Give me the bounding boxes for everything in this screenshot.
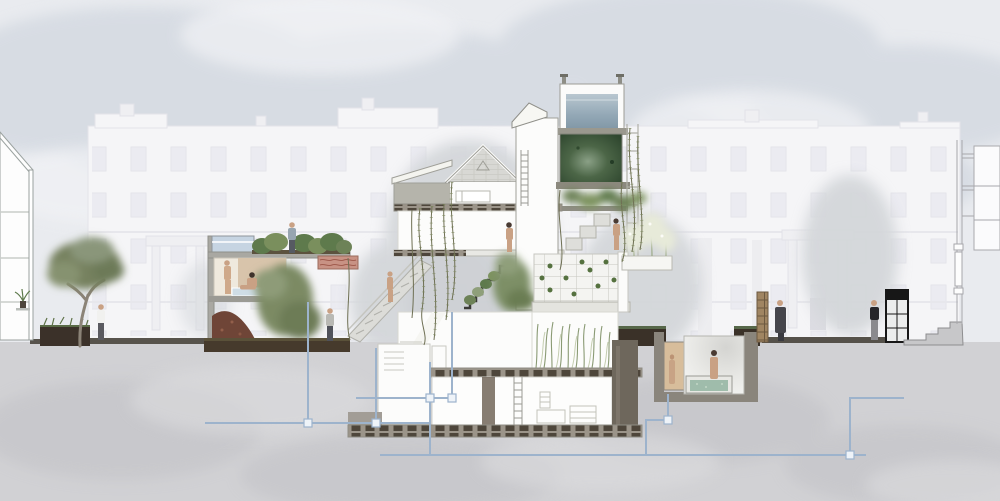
moss-wall [556, 128, 630, 189]
brick-pillar [757, 292, 768, 342]
grid-planter-terrace [532, 252, 630, 312]
water-tank [212, 236, 254, 254]
annex-soil-base [204, 340, 350, 352]
attic-bedroom [450, 182, 516, 204]
plunge-bath [686, 376, 732, 393]
roof-garden [252, 233, 352, 254]
black-booth [886, 290, 908, 342]
architectural-section-illustration [0, 0, 1000, 501]
red-mural [318, 256, 358, 269]
basement-right-wall [612, 340, 638, 436]
terrace-deck-slab [532, 302, 630, 312]
left-sub-room [378, 344, 430, 424]
slab-basement [348, 425, 642, 437]
earth-streak [482, 377, 495, 425]
section-artwork [0, 0, 1000, 501]
grass-room [532, 312, 618, 368]
left-wing-wall [394, 183, 452, 205]
